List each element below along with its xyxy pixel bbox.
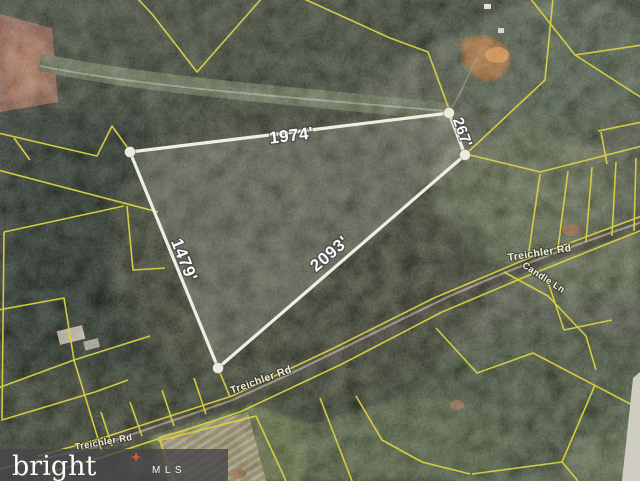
photo-glare (0, 0, 640, 481)
watermark-mls: MLS (152, 465, 186, 476)
map-canvas: 1974' 267' 2093' 1479' Treichler Rd Trei… (0, 0, 640, 481)
aerial-parcel-map-photo: 1974' 267' 2093' 1479' Treichler Rd Trei… (0, 0, 640, 481)
brightmls-watermark: bright MLS (0, 449, 228, 481)
watermark-brand: bright (12, 451, 96, 481)
